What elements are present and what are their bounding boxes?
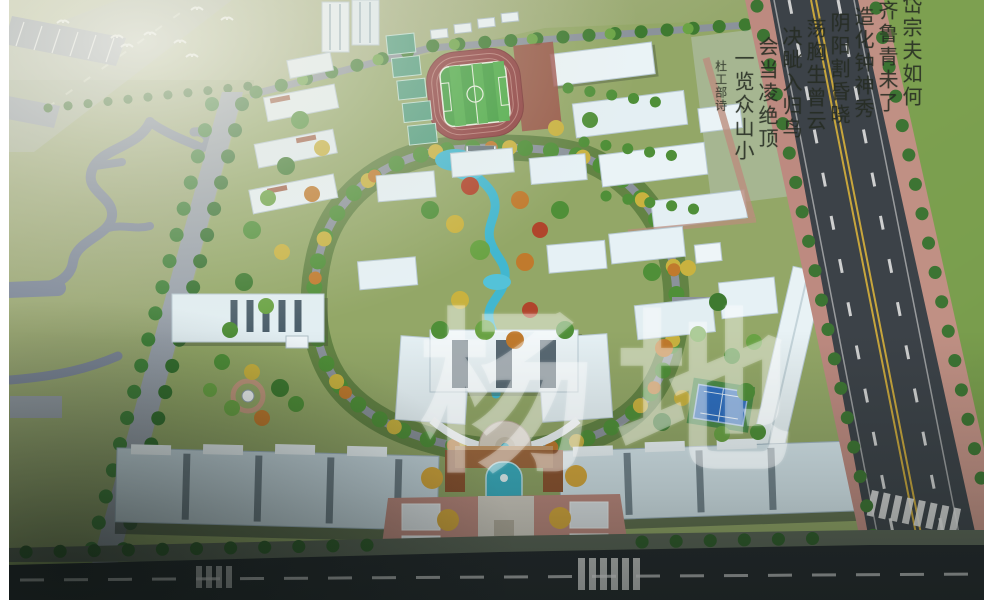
white-margin-right	[984, 0, 1000, 600]
masterplan-scene	[0, 0, 1000, 600]
white-margin-left	[0, 0, 9, 600]
corner-vignette	[0, 0, 1000, 600]
rendering-canvas: 岱宗夫如何 齐鲁青未了 造化钟神秀 阴阳割昏晓 荡胸生曾云 决眦入归鸟 会当凌绝…	[0, 0, 1000, 600]
